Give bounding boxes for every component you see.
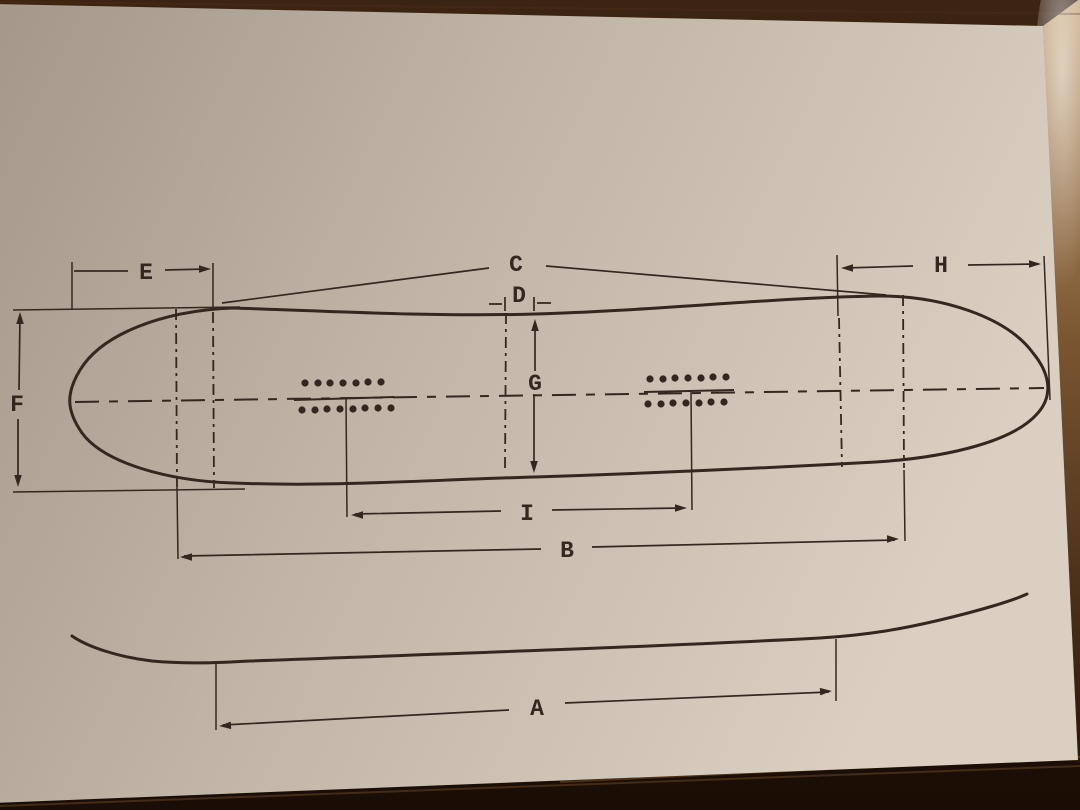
left-insert-center-extension: [346, 399, 347, 517]
label-G: G: [528, 371, 542, 397]
tail-insert-reference-upper: [837, 255, 838, 316]
label-B: B: [560, 538, 574, 564]
nose-contact-reference-line: [176, 309, 177, 487]
label-C: C: [509, 252, 523, 278]
dimension-B-left-extension: [177, 487, 178, 559]
label-A: A: [530, 696, 544, 722]
right-insert-center-extension: [691, 392, 692, 510]
snowboard-dimension-diagram: E F C D G: [0, 0, 1080, 810]
label-E: E: [139, 260, 153, 286]
paper-sheet: [0, 4, 1078, 803]
label-D: D: [512, 283, 526, 309]
label-I: I: [520, 501, 534, 527]
label-F: F: [10, 392, 24, 418]
photo-of-snowboard-diagram: E F C D G: [0, 0, 1080, 810]
dimension-B-right-extension: [904, 470, 905, 541]
label-H: H: [934, 253, 948, 279]
